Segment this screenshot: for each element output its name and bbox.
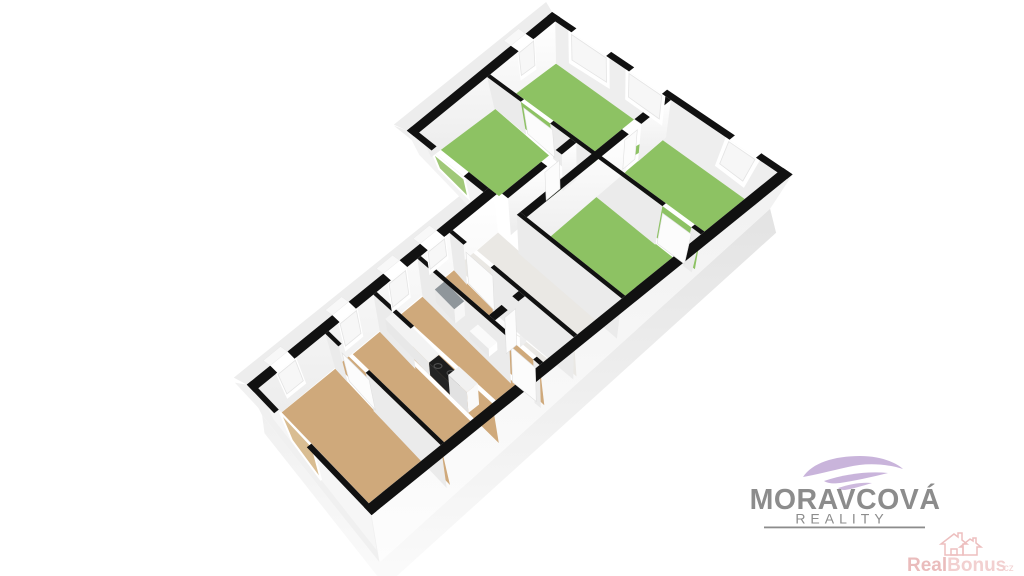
svg-text:.cz: .cz — [1001, 563, 1014, 574]
svg-text:RealBonus: RealBonus — [907, 555, 1006, 576]
svg-text:REALITY: REALITY — [795, 511, 888, 527]
